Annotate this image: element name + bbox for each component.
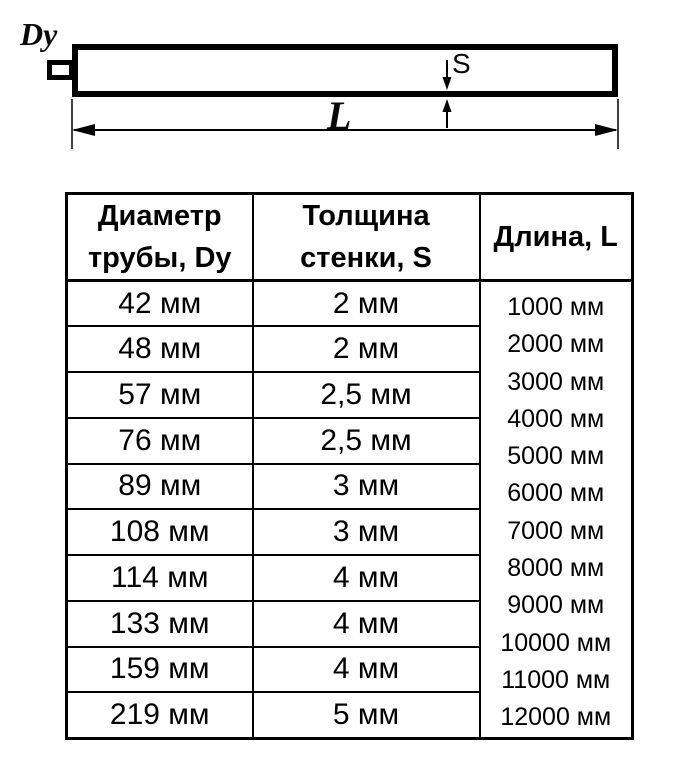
thickness-cell: 2,5 мм	[253, 372, 480, 418]
thickness-cell: 2,5 мм	[253, 418, 480, 464]
pipe-spec-page: Dy S L Диаметр трубы, Dy Толщина стенки,…	[0, 0, 681, 784]
diameter-cell: 159 мм	[67, 647, 253, 693]
length-value: 6000 мм	[481, 475, 632, 512]
length-value: 9000 мм	[481, 587, 632, 624]
thickness-cell: 5 мм	[253, 692, 480, 738]
diameter-symbol-label: Dy	[20, 16, 57, 53]
pipe-dimension-diagram: Dy S L	[0, 0, 681, 180]
pipe-drawing	[0, 0, 681, 180]
thickness-cell: 3 мм	[253, 464, 480, 510]
length-value: 11000 мм	[481, 662, 632, 699]
length-value: 4000 мм	[481, 401, 632, 438]
length-column-header: Длина, L	[480, 194, 633, 281]
thickness-cell: 2 мм	[253, 281, 480, 327]
thickness-cell: 4 мм	[253, 601, 480, 647]
diameter-cell: 219 мм	[67, 692, 253, 738]
length-arrowhead-left	[72, 124, 95, 136]
length-value: 5000 мм	[481, 438, 632, 475]
thickness-cell: 3 мм	[253, 509, 480, 555]
thickness-column-header: Толщина стенки, S	[253, 194, 480, 281]
diameter-cell: 133 мм	[67, 601, 253, 647]
pipe-end-tab	[50, 63, 72, 78]
diameter-cell: 108 мм	[67, 509, 253, 555]
length-symbol-label: L	[327, 92, 351, 139]
diameter-cell: 42 мм	[67, 281, 253, 327]
diameter-cell: 114 мм	[67, 555, 253, 601]
length-value: 1000 мм	[481, 289, 632, 326]
pipe-size-table: Диаметр трубы, Dy Толщина стенки, S Длин…	[65, 192, 634, 740]
pipe-body-outline	[75, 47, 615, 94]
length-options-cell: 1000 мм 2000 мм 3000 мм 4000 мм 5000 мм …	[480, 281, 633, 739]
thickness-cell: 4 мм	[253, 555, 480, 601]
diameter-cell: 57 мм	[67, 372, 253, 418]
length-arrowhead-right	[595, 124, 618, 136]
table-header-row: Диаметр трубы, Dy Толщина стенки, S Длин…	[67, 194, 633, 281]
diameter-cell: 48 мм	[67, 326, 253, 372]
length-value: 8000 мм	[481, 550, 632, 587]
length-value: 12000 мм	[481, 699, 632, 736]
wall-thickness-symbol-label: S	[452, 48, 471, 80]
length-value: 2000 мм	[481, 326, 632, 363]
length-value: 7000 мм	[481, 513, 632, 550]
table-row: 42 мм 2 мм 1000 мм 2000 мм 3000 мм 4000 …	[67, 281, 633, 327]
thickness-cell: 2 мм	[253, 326, 480, 372]
length-value: 10000 мм	[481, 625, 632, 662]
diameter-column-header: Диаметр трубы, Dy	[67, 194, 253, 281]
thickness-cell: 4 мм	[253, 647, 480, 693]
length-value: 3000 мм	[481, 364, 632, 401]
diameter-cell: 89 мм	[67, 464, 253, 510]
diameter-cell: 76 мм	[67, 418, 253, 464]
